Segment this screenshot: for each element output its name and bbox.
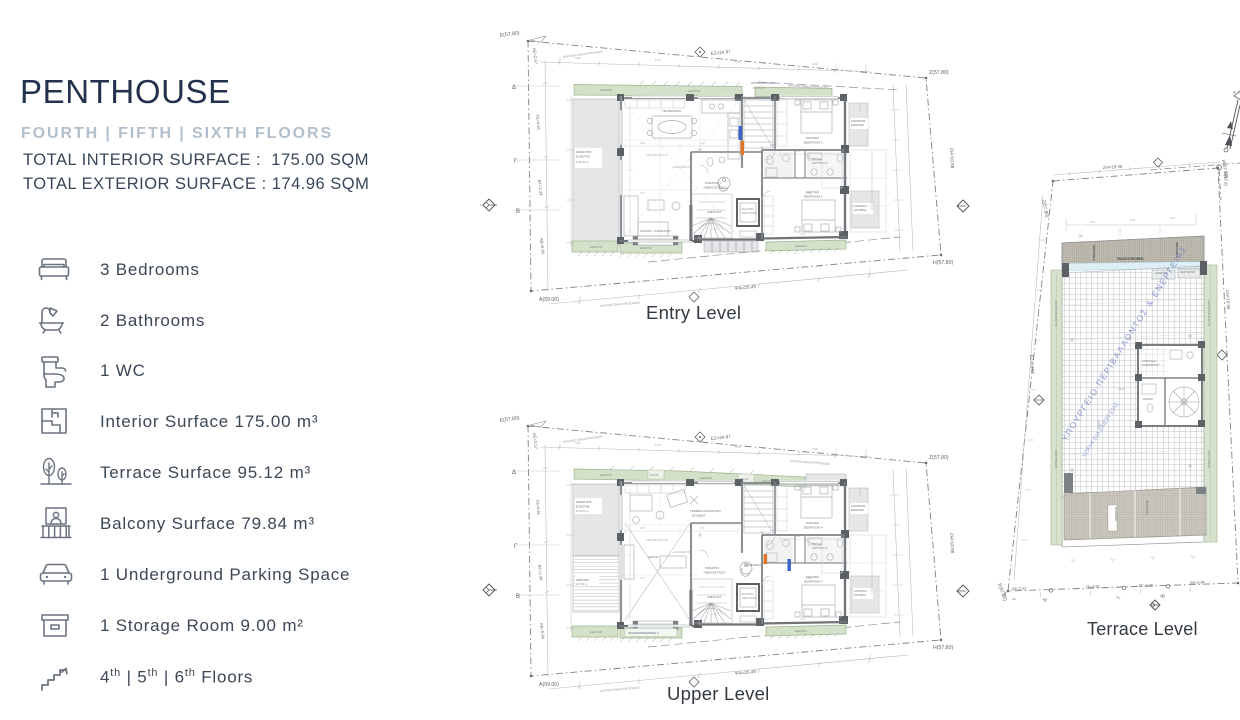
svg-text:ΑΡΧΙΤΕΚΤΟΝΙΚΑ ΠΡΟΣΧΕΔΙΑ: ΑΡΧΙΤΕΚΤΟΝΙΚΑ ΠΡΟΣΧΕΔΙΑ: [600, 686, 640, 693]
svg-text:ΕΞΩΣΤΗΣ: ΕΞΩΣΤΗΣ: [851, 123, 864, 127]
svg-text:ΔΡΟΜ.ΕΡΓΚΕΡ 2: ΔΡΟΜ.ΕΡΓΚΕΡ 2: [751, 81, 775, 85]
svg-text:ΨΑ=25.49: ΨΑ=25.49: [735, 669, 757, 676]
svg-text:A(59.00): A(59.00): [539, 682, 559, 688]
svg-text:ΕΞΩΣΤΗΣ: ΕΞΩΣΤΗΣ: [795, 629, 807, 633]
svg-text:E(57.80): E(57.80): [499, 415, 520, 424]
svg-text:BEDROOM 1: BEDROOM 1: [804, 195, 823, 199]
svg-text:Ε=29.50 τμ: Ε=29.50 τμ: [576, 160, 589, 164]
svg-text:ΓΔ=4.61: ΓΔ=4.61: [535, 115, 542, 131]
svg-text:ΕΞΩΣΤΗΣ: ΕΞΩΣΤΗΣ: [600, 88, 612, 92]
svg-text:ΖΗ=10.98: ΖΗ=10.98: [949, 533, 955, 554]
svg-text:ΕΞΩΣΤΗΣ: ΕΞΩΣΤΗΣ: [576, 155, 590, 159]
svg-text:1.45: 1.45: [806, 577, 811, 580]
svg-text:BEDROOM 3: BEDROOM 3: [804, 580, 823, 584]
svg-text:1.20: 1.20: [712, 228, 717, 231]
svg-text:ΨΑ=25.49: ΨΑ=25.49: [735, 284, 757, 291]
svg-text:ΑΡΧΙΤΕΚΤΟΝΙΚΑ ΠΡΟΣΧΕΔΙΑ: ΑΡΧΙΤΕΚΤΟΝΙΚΑ ΠΡΟΣΧΕΔΙΑ: [563, 434, 603, 444]
svg-text:3.95: 3.95: [800, 618, 805, 621]
svg-text:BEDROOM 2: BEDROOM 2: [804, 141, 823, 145]
svg-text:Z(57.80): Z(57.80): [929, 70, 949, 76]
svg-text:2.90: 2.90: [770, 529, 775, 532]
svg-text:ΜΗΧ/ΜΑ: ΜΗΧ/ΜΑ: [1143, 398, 1153, 401]
svg-text:ΓΡΑΦΕΙΟ-ΚΑΘΙΣΤΙΚΟ: ΓΡΑΦΕΙΟ-ΚΑΘΙΣΤΙΚΟ: [690, 509, 721, 513]
svg-text:2.60: 2.60: [700, 142, 705, 145]
svg-text:B: B: [1160, 593, 1167, 598]
svg-text:ΓΔ=4.61: ΓΔ=4.61: [1086, 585, 1100, 589]
svg-text:Ε.Δ2=1.05: Ε.Δ2=1.05: [753, 86, 766, 90]
svg-text:ΚΟΥΖΙΝΑ: ΚΟΥΖΙΝΑ: [854, 208, 866, 212]
svg-text:ΕΞΩΣΤΗΣ: ΕΞΩΣΤΗΣ: [600, 473, 612, 477]
svg-text:ΟΡΘΟΜΑΡΜΑΡΩΣΗ 2: ΟΡΘΟΜΑΡΜΑΡΩΣΗ 2: [628, 631, 659, 635]
svg-text:ΕΞΩΣΤΗΣ: ΕΞΩΣΤΗΣ: [795, 244, 807, 248]
svg-text:ΑΡΧΙΤΕΚΤΟΝΙΚΑ ΠΡΟΣΧΕΔΙΑ: ΑΡΧΙΤΕΚΤΟΝΙΚΑ ΠΡΟΣΧΕΔΙΑ: [600, 301, 640, 308]
svg-text:ΒΓ=2.34: ΒΓ=2.34: [537, 565, 544, 582]
svg-text:ΑΝΕΛΚ/ΡΑΣ: ΑΝΕΛΚ/ΡΑΣ: [741, 208, 754, 211]
svg-text:ΖΗ=10.98: ΖΗ=10.98: [949, 148, 955, 169]
svg-text:ΑΒ=5.94: ΑΒ=5.94: [1190, 580, 1205, 585]
svg-text:4.90: 4.90: [812, 62, 818, 66]
svg-text:ΔΕ=2.67: ΔΕ=2.67: [1012, 586, 1027, 591]
svg-text:ΑΝΟΙΚΤΟΣ: ΑΝΟΙΚΤΟΣ: [576, 500, 591, 504]
svg-text:ΑΒ=5.94: ΑΒ=5.94: [539, 623, 546, 640]
svg-text:ΖΗ=19.46: ΖΗ=19.46: [1103, 164, 1123, 170]
svg-text:E(57.80): E(57.80): [996, 583, 1008, 603]
svg-text:ΣΑΛΟΝΙ - ΚΑΘΙΣΤΙΚΟ: ΣΑΛΟΝΙ - ΚΑΘΙΣΤΙΚΟ: [640, 229, 671, 233]
svg-text:Z(57.80): Z(57.80): [929, 455, 949, 461]
svg-text:6.10: 6.10: [655, 58, 661, 62]
svg-text:ΔΕ: ΔΕ: [1012, 597, 1016, 601]
svg-text:5.30: 5.30: [1130, 218, 1136, 222]
svg-text:H(57.80): H(57.80): [933, 260, 953, 266]
svg-text:3.95: 3.95: [800, 233, 805, 236]
svg-text:2.60: 2.60: [700, 527, 705, 530]
svg-text:+0.00 ΚΑΘΙΣΤΙΚΟ: +0.00 ΚΑΘΙΣΤΙΚΟ: [672, 166, 692, 169]
svg-text:ΕΞΩΣΤΗΣ: ΕΞΩΣΤΗΣ: [700, 476, 712, 480]
svg-text:5.95: 5.95: [735, 445, 741, 449]
svg-text:ΑΒ=5.94: ΑΒ=5.94: [539, 238, 546, 255]
svg-text:H(57.80): H(57.80): [933, 645, 953, 651]
svg-text:ΠΡΟΒΟΛΗ: ΠΡΟΒΟΛΗ: [1114, 507, 1118, 521]
svg-text:+3.10 ΚΑΘΙΣΤΙΚΟ: +3.10 ΚΑΘΙΣΤΙΚΟ: [672, 551, 692, 554]
svg-text:ΚΛΙΜΑΚ/ΣΙΟΥ: ΚΛΙΜΑΚ/ΣΙΟΥ: [1142, 363, 1160, 367]
svg-text:Δ: Δ: [1042, 597, 1049, 602]
svg-text:ΕΞΩΣΤΗΣ: ΕΞΩΣΤΗΣ: [851, 508, 864, 512]
svg-text:ΔΙΑΔΡΟΜΟΣ: ΔΙΑΔΡΟΜΟΣ: [745, 563, 761, 567]
svg-text:Δ: Δ: [512, 85, 516, 91]
svg-text:3.05 3.90 2.45 1.90: 3.05 3.90 2.45 1.90: [646, 154, 668, 157]
svg-text:3.05 3.90 2.45 1.90: 3.05 3.90 2.45 1.90: [646, 539, 668, 542]
svg-text:ΛΕΠΤΟΜ.: ΛΕΠΤΟΜ.: [576, 578, 590, 582]
svg-text:MASTER: MASTER: [806, 136, 820, 140]
svg-text:ΒΓ=2.34: ΒΓ=2.34: [537, 180, 544, 197]
svg-text:ΔΕ=2.67: ΔΕ=2.67: [532, 48, 539, 65]
svg-text:1.05: 1.05: [1078, 234, 1084, 238]
svg-text:ΕΣΟΔΕΙΑ: ΕΣΟΔΕΙΑ: [692, 514, 706, 518]
svg-text:4.15: 4.15: [1170, 216, 1176, 220]
svg-text:3.40: 3.40: [795, 535, 800, 538]
svg-text:6.10: 6.10: [655, 443, 661, 447]
svg-text:2.90: 2.90: [770, 144, 775, 147]
svg-text:ΚΟΥΖΙΝΑ: ΚΟΥΖΙΝΑ: [854, 593, 866, 597]
svg-text:BEDROOM 4: BEDROOM 4: [804, 526, 823, 530]
svg-text:3.85: 3.85: [640, 142, 645, 145]
svg-text:1.45: 1.45: [806, 192, 811, 195]
svg-text:ΣΚΙΑΣΗ ΟΡΟΦΗΣ: ΣΚΙΑΣΗ ΟΡΟΦΗΣ: [1117, 257, 1144, 261]
svg-text:ΑΝΟΙΚΤΟΣ: ΑΝΟΙΚΤΟΣ: [576, 150, 591, 154]
svg-text:4.15: 4.15: [640, 192, 645, 195]
svg-text:MASTER: MASTER: [806, 521, 820, 525]
svg-text:Δ: Δ: [512, 470, 516, 476]
svg-text:Ε=8.30 τμ: Ε=8.30 τμ: [576, 582, 588, 586]
svg-text:3.40: 3.40: [795, 150, 800, 153]
svg-text:A(59.00): A(59.00): [539, 297, 559, 303]
svg-text:ΤΡΑΠΕΖΑΡΙΑ: ΤΡΑΠΕΖΑΡΙΑ: [662, 109, 682, 113]
svg-text:4.15: 4.15: [640, 577, 645, 580]
svg-text:4.15: 4.15: [1090, 220, 1096, 224]
svg-text:ΖΑΡΝΤΙΝΙΕΡΑ: ΖΑΡΝΤΙΝΙΕΡΑ: [1054, 450, 1058, 468]
svg-text:ΑΝΕΛΚΥΣΤ.: ΑΝΕΛΚΥΣΤ.: [707, 210, 722, 214]
svg-text:H(57.80): H(57.80): [1220, 159, 1229, 179]
svg-text:ΒΓ=2.36: ΒΓ=2.36: [1139, 584, 1153, 588]
svg-text:ΚΟΙΜ/ΡΙΟ: ΚΟΙΜ/ΡΙΟ: [705, 181, 720, 185]
svg-text:ΑΝΕΛΚ/ΡΑΣ: ΑΝΕΛΚ/ΡΑΣ: [741, 593, 754, 596]
svg-text:ΕΞΩΣΤΗΣ: ΕΞΩΣΤΗΣ: [576, 505, 590, 509]
svg-text:Γ: Γ: [1116, 595, 1123, 599]
svg-text:E(57.80): E(57.80): [499, 30, 520, 39]
svg-text:ΕΖ=24.97: ΕΖ=24.97: [711, 434, 732, 441]
svg-text:ΛΟΥΤΡΟ 1: ΛΟΥΤΡΟ 1: [812, 161, 828, 165]
svg-text:ΖΑΡΝΤΙΝΙΕΡΑ ΦΥΤΑ: ΖΑΡΝΤΙΝΙΕΡΑ ΦΥΤΑ: [1054, 300, 1058, 326]
svg-text:ΜΕΓΑ ΑΤΟΜΑ: ΜΕΓΑ ΑΤΟΜΑ: [742, 597, 757, 600]
svg-text:ΠΕΡΓΚΟΛΑ: ΠΕΡΓΚΟΛΑ: [1092, 245, 1096, 262]
svg-text:ΕΞΩΣΤΗΣ: ΕΞΩΣΤΗΣ: [590, 245, 602, 249]
svg-text:B: B: [516, 209, 520, 215]
svg-text:ΑΝΕΛΚΥΣΤ.: ΑΝΕΛΚΥΣΤ.: [707, 595, 722, 599]
svg-text:ΖΑΡΝΤΙΝΙΕΡΑ: ΖΑΡΝΤΙΝΙΕΡΑ: [1207, 450, 1211, 468]
svg-text:ΑΡΧΙΤΕΚΤΟΝΙΚΑ ΠΡΟΣΧΕΔΙΑ: ΑΡΧΙΤΕΚΤΟΝΙΚΑ ΠΡΟΣΧΕΔΙΑ: [563, 49, 603, 59]
svg-text:ΜΕΓΑ ΑΤΟΜΑ: ΜΕΓΑ ΑΤΟΜΑ: [742, 212, 757, 215]
svg-text:5.95: 5.95: [735, 60, 741, 64]
svg-text:ΖΗ=10.98: ΖΗ=10.98: [1225, 290, 1231, 310]
svg-text:ΛΟΥΤΡΟ 4: ΛΟΥΤΡΟ 4: [812, 546, 828, 550]
svg-text:Ε=9.90: Ε=9.90: [650, 473, 659, 477]
svg-text:+9.30: +9.30: [1118, 387, 1126, 391]
svg-text:ΕΞΩΣΤΗΣ: ΕΞΩΣΤΗΣ: [688, 89, 700, 93]
svg-text:ΕΞΩΤ.ΧΩΡΟΣ: ΕΞΩΤ.ΧΩΡΟΣ: [1180, 271, 1196, 274]
svg-text:1.20: 1.20: [712, 613, 717, 616]
svg-text:ΥΜΒΟΣ/ΣΤΑΣΙΟ: ΥΜΒΟΣ/ΣΤΑΣΙΟ: [703, 571, 726, 575]
svg-text:B: B: [516, 594, 520, 600]
svg-text:ΑΕΡΟΣ: ΑΕΡΟΣ: [648, 555, 659, 559]
svg-text:ΚΟΙΜ/ΡΙΟ: ΚΟΙΜ/ΡΙΟ: [705, 566, 720, 570]
svg-text:ΕΞΩΣΤΗΣ: ΕΞΩΣΤΗΣ: [590, 630, 602, 634]
svg-text:ΕΞΩΣΤΗΣ: ΕΞΩΣΤΗΣ: [640, 246, 652, 250]
svg-text:ΓΔ=4.61: ΓΔ=4.61: [535, 500, 542, 516]
svg-text:ΥΜΒΟΣ/ΣΤΑΣΙΟ: ΥΜΒΟΣ/ΣΤΑΣΙΟ: [703, 186, 726, 190]
svg-text:3.85: 3.85: [640, 527, 645, 530]
svg-text:4.90: 4.90: [812, 447, 818, 451]
svg-text:ΖΑΡΝΤΙΝΙΕΡΑ ΦΥΤΑ: ΖΑΡΝΤΙΝΙΕΡΑ ΦΥΤΑ: [1207, 300, 1211, 326]
svg-text:Ε=12.40 τμ: Ε=12.40 τμ: [576, 509, 589, 513]
svg-text:ΑΡΧΙΤΕΚΤΟΝΙΚΑ ΠΡΟΣΧΕΔΙΑ: ΑΡΧΙΤΕΚΤΟΝΙΚΑ ΠΡΟΣΧΕΔΙΑ: [790, 459, 830, 466]
svg-text:ΕΖ=24.97: ΕΖ=24.97: [711, 49, 732, 56]
svg-text:ΠΕΡΓΚΟΛΑ: ΠΕΡΓΚΟΛΑ: [1145, 500, 1149, 515]
svg-text:ΔΕ=2.67: ΔΕ=2.67: [532, 433, 539, 450]
